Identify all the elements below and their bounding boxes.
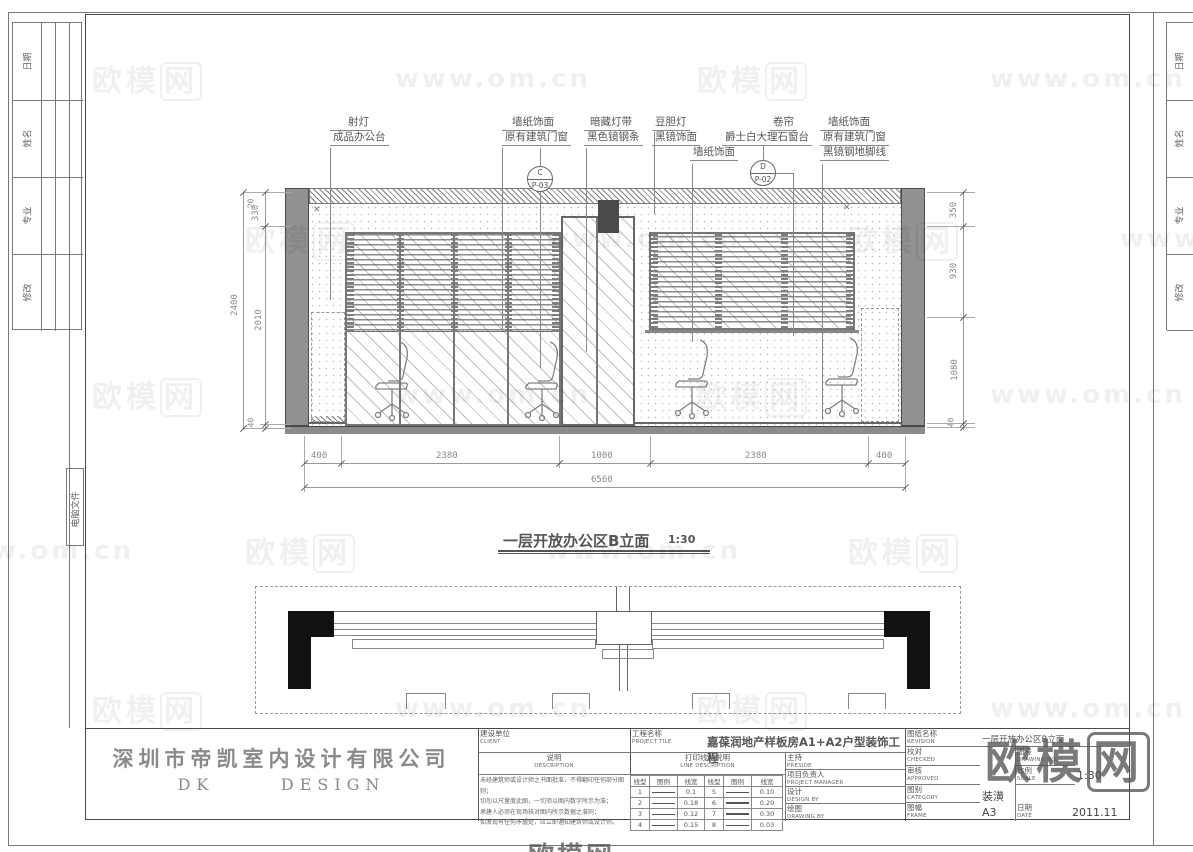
glass-door [561,216,635,426]
annotation-label-3: 暗藏灯带 黑色镜钢条 [584,116,643,146]
blind-stack [651,234,658,328]
disclaimer-line: 切勿以尺量度此图，一切须以图内数字所示为准； [480,797,628,808]
dim-line-left-overall [243,192,244,430]
dim-line-left-chain [265,192,266,430]
line-no: 4 [631,820,650,831]
view-title-scale: 1:30 [668,533,695,546]
annotation-text: 黑色镜钢条 [584,131,643,146]
checked-label-en: CHECKED [907,757,978,763]
description-label-en: DESCRIPTION [480,763,628,769]
leader-line [793,173,794,336]
frame-label: 图幅 [907,804,978,813]
line-legend [724,809,752,820]
blind-stack [715,234,722,328]
line-legend [724,798,752,809]
line-desc-label: 打印线型说明 [632,754,783,763]
office-chair-icon [671,336,715,428]
window-band [649,232,855,330]
role-project-manager: 项目负责人 PROJECT MANAGER [785,770,905,787]
office-chair-icon [521,338,565,430]
plan-column-left [288,611,311,689]
section-plan-view [255,586,961,714]
line-width: 0.03 [752,820,783,831]
annotation-text: 墙纸饰面 [502,116,557,131]
line-desc-header: 打印线型说明 LINE DESCRIPTION [630,753,785,775]
callout-number: P-02 [751,174,775,185]
plan-desk [652,639,884,649]
callout-stem [540,148,541,166]
desk-outline-right [861,308,899,422]
client-label: 建设单位 [480,730,628,739]
dim-text: 2380 [436,451,458,461]
drawing-no-label-en: DRAWING NO. [1017,757,1073,763]
role-label: 设计 [787,788,903,797]
line-no: 3 [631,809,650,820]
roles-panel: 主持 PRESIDE 项目负责人 PROJECT MANAGER 设计 DESI… [785,753,905,821]
dim-ext-line [927,226,975,227]
line-width: 0.12 [678,809,705,820]
client-label-en: CLIENT [480,739,628,745]
line-table-header: 线型 [705,776,724,787]
line-table-header: 图例 [724,776,752,787]
left-table-label-discipline: 专业 [21,188,34,244]
dim-text: 2380 [745,451,767,461]
role-label-en: PROJECT MANAGER [787,780,903,786]
dim-line-right-chain [963,192,964,430]
callout-number: P-03 [528,180,552,191]
dim-text: 1080 [950,359,960,381]
dim-line-bottom-chain [304,463,906,464]
right-table-label-name: 姓名 [1173,119,1186,159]
title-underline [498,550,710,554]
role-label: 绘图 [787,805,903,814]
oumo-watermark-logo-dark: 欧模网 [528,836,615,852]
annotation-label-6: 墙纸饰面 原有建筑门窗 黑镜钢地脚线 [820,116,889,161]
left-revision-table: 日期 姓名 专业 修改 [12,22,82,330]
approved-label: 审核 [907,767,978,776]
annotation-text: 黑镜饰面 [652,131,700,146]
office-chair-icon [371,338,415,430]
date-label: 日期 [1017,804,1073,813]
dim-ext-line [243,428,291,429]
line-table: 线型 图例 线宽 线型 图例 线宽 1 0.1 5 0.10 2 [630,775,783,831]
blind-stack [552,234,559,332]
annotation-text: 墙纸饰面 [820,116,873,131]
disclaimer-text: 未经建筑师或设计师之书面批准，不得翻印任何部分图则； 切勿以尺量度此图，一切须以… [478,775,630,821]
line-table-row: 3 0.12 7 0.30 [631,809,783,820]
dim-line-bottom-overall [304,487,906,488]
plan-cabinet [692,693,730,709]
line-table-row: 1 0.1 5 0.10 [631,787,783,798]
leader-line [586,148,587,352]
title-block: 深圳市帝凯室内设计有限公司 DK DESIGN 建设单位 CLIENT 说明 D… [85,728,1130,820]
venetian-blinds [347,234,559,332]
blind-stack [781,234,788,328]
line-legend [650,798,678,809]
blind-stack [846,234,853,328]
dim-text: 2010 [254,309,264,331]
view-title: 一层开放办公区B立面 [503,530,649,551]
client-cell: 建设单位 CLIENT [478,729,630,753]
plan-window-line [652,623,884,624]
leader-line [692,164,693,342]
plan-cabinet [848,693,886,709]
line-no: 6 [705,798,724,809]
blind-stack [505,234,512,332]
line-width: 0.18 [678,798,705,809]
elevation-view: ✕ ✕ [285,188,925,434]
category-label: 图别 [907,786,978,795]
table-divider [1167,100,1193,101]
scale-label-en: SCALE [1017,776,1073,782]
line-no: 8 [705,820,724,831]
blind-stack [451,234,458,332]
scale-value: 1:30 [1075,768,1130,785]
plan-desk [602,649,654,659]
date-cell: 日期 DATE [1015,803,1075,821]
line-table-header: 线宽 [678,776,705,787]
line-width: 0.1 [678,787,705,798]
line-desc-label-en: LINE DESCRIPTION [632,763,783,769]
marble-window-sill [645,330,859,333]
dim-ext-line [927,427,975,428]
frame-value: A3 [980,805,1015,821]
line-no: 5 [705,787,724,798]
dim-text: 2400 [230,294,240,316]
line-no: 7 [705,809,724,820]
blind-stack [347,234,354,332]
table-divider [13,254,83,255]
dim-text: 930 [949,263,959,279]
approved-cell: 审核 APPROVED [905,766,980,785]
line-legend [650,820,678,831]
detail-callout-c: C P-03 [527,166,553,192]
project-name: 嘉葆润地产样板房A1+A2户型装饰工程 [705,729,905,753]
ceiling-light-symbol: ✕ [313,205,321,215]
right-revision-table: 日期 姓名 专业 修改 [1166,22,1193,330]
table-divider [1167,254,1193,255]
annotation-label-2: 墙纸饰面 原有建筑门窗 [502,116,571,146]
plan-center-stem-top [616,587,630,611]
annotation-text: 成品办公台 [330,131,389,146]
annotation-text: 卷帘 [770,116,797,131]
line-table-header: 线型 [631,776,650,787]
sheet-outer-border-left [8,12,9,846]
computer-file-strip: 电脑文件 [66,468,84,546]
plan-column-right [907,611,930,689]
table-divider [13,177,83,178]
company-panel: 深圳市帝凯室内设计有限公司 DK DESIGN [85,729,478,821]
annotation-label-5: 卷帘 爵士白大理石窗台 [722,116,812,146]
annotation-text: 暗藏灯带 [584,116,635,131]
left-table-label-name: 姓名 [21,111,34,167]
disclaimer-line: 未经建筑师或设计师之书面批准，不得翻印任何部分图则； [480,776,628,797]
dim-ext-line [243,192,291,193]
annotation-text: 墙纸饰面 [690,146,738,161]
dim-text: 350 [949,202,959,218]
computer-file-label: 电脑文件 [69,480,82,540]
annotation-label-1: 射灯 成品办公台 [330,116,389,146]
plan-desk [352,639,596,649]
right-table-label-date: 日期 [1173,42,1186,82]
sheet-outer-border-bottom [8,845,1193,846]
company-name: 深圳市帝凯室内设计有限公司 [85,743,478,773]
callout-letter: C [528,167,552,180]
sheet-outer-border-top [8,12,1193,13]
role-label-en: DRAWING BY [787,814,903,820]
checked-cell: 校对 CHECKED [905,747,980,766]
line-no: 1 [631,787,650,798]
revision-cell: 图纸名称 REVISION [905,729,980,747]
line-table-row: 4 0.15 8 0.03 [631,820,783,831]
category-cell: 图别 CATEGORY [905,785,980,803]
role-drawing-by: 绘图 DRAWING BY [785,804,905,821]
line-type-table: 线型 图例 线宽 线型 图例 线宽 1 0.1 5 0.10 2 [630,775,783,831]
line-no: 2 [631,798,650,809]
annotation-text: 黑镜钢地脚线 [820,146,889,161]
dim-text: 40 [246,418,255,428]
disclaimer-line: 承建人必须在现场核对图内所示数据之准则； [480,808,628,819]
callout-letter: D [751,161,775,174]
door-header-block [598,200,619,233]
dim-text: 400 [876,451,892,461]
revision-label: 图纸名称 [907,730,978,739]
leader-line [776,173,793,174]
dim-ext-line [927,317,975,318]
project-label-en: PROJECT TILE [632,739,703,745]
left-wall-column [285,188,309,426]
line-width: 0.10 [752,787,783,798]
desk-outline-left [311,312,345,422]
blind-stack [397,234,404,332]
role-label-en: PRESIDE [787,763,903,769]
approved-label-en: APPROVED [907,776,978,782]
plan-center-column [596,611,652,645]
project-label: 工程名称 [632,730,703,739]
leader-line [330,148,331,300]
table-divider [13,100,83,101]
wallpaper-interior [309,204,901,426]
annotation-text: 原有建筑门窗 [820,131,889,146]
line-legend [650,787,678,798]
role-design-by: 设计 DESIGN BY [785,787,905,804]
leader-line [654,132,655,214]
annotation-text: 原有建筑门窗 [502,131,571,146]
revision-label-en: REVISION [907,739,978,745]
annotation-text: 射灯 [330,116,372,131]
right-table-label-revision: 修改 [1173,273,1186,313]
project-label-cell: 工程名称 PROJECT TILE [630,729,705,753]
date-value: 2011.11 [1070,805,1130,821]
line-width: 0.15 [678,820,705,831]
category-value: 装潢 [980,787,1015,803]
plan-window-line [652,629,884,630]
line-table-row: 2 0.18 6 0.20 [631,798,783,809]
drawing-no-cell: 图号 DRAWING NO. [1015,747,1075,766]
leader-line [540,192,541,368]
left-table-label-date: 日期 [21,34,34,90]
description-label: 说明 [480,754,628,763]
plan-cabinet [552,693,590,709]
plan-cabinet [406,693,446,709]
line-width: 0.20 [752,798,783,809]
leader-line [502,148,503,330]
dim-ext-line [927,423,975,424]
drawing-no-label: 图号 [1017,748,1073,757]
plan-window-line [334,635,596,636]
category-label-en: CATEGORY [907,795,978,801]
table-divider [1167,330,1193,331]
role-label-en: DESIGN BY [787,797,903,803]
date-label-en: DATE [1017,813,1073,819]
scale-label: 比例 [1017,767,1073,776]
frame-cell: 图幅 FRAME [905,803,980,821]
left-table-label-revision: 修改 [21,265,34,321]
role-label: 主持 [787,754,903,763]
line-legend [650,809,678,820]
line-table-header-row: 线型 图例 线宽 线型 图例 线宽 [631,776,783,787]
description-cell: 说明 DESCRIPTION [478,753,630,775]
line-width: 0.30 [752,809,783,820]
ceiling-light-symbol: ✕ [843,203,851,213]
detail-callout-d: D P-02 [750,160,776,186]
revision-value: 一层开放办公区B立面 [980,729,1130,747]
dim-text: 330 [251,205,261,221]
drawing-info-panel: 图纸名称 REVISION 一层开放办公区B立面 校对 CHECKED 审核 A… [905,729,1130,821]
dim-text: 6560 [591,475,613,485]
company-brand: DK DESIGN [85,775,478,794]
checked-label: 校对 [907,748,978,757]
frame-label-en: FRAME [907,813,978,819]
line-legend [724,787,752,798]
right-table-label-discipline: 专业 [1173,196,1186,236]
plan-window-line [334,629,596,630]
line-table-header: 线宽 [752,776,783,787]
line-table-header: 图例 [650,776,678,787]
role-label: 项目负责人 [787,771,903,780]
drawing-sheet: 日期 姓名 专业 修改 电脑文件 日期 姓名 专业 修改 [0,0,1193,852]
dim-text: 400 [311,451,327,461]
right-margin-line [1153,12,1154,846]
line-legend [724,820,752,831]
office-chair-icon [821,334,865,426]
leader-line [822,164,823,420]
annotation-text: 豆胆灯 [652,116,690,131]
callout-stem [763,146,764,160]
right-wall-column [901,188,925,426]
table-divider [1167,177,1193,178]
disclaimer-line: 如发现有任何矛盾处，应立即通知建筑师或设计师。 [480,818,628,829]
plan-window-line [334,623,596,624]
door-mullion [596,218,598,424]
dim-text: 1000 [591,451,613,461]
plan-window-line [652,635,884,636]
annotation-text: 爵士白大理石窗台 [722,131,812,146]
dim-ext-line [927,192,975,193]
role-preside: 主持 PRESIDE [785,753,905,770]
scale-cell: 比例 SCALE [1015,766,1075,785]
